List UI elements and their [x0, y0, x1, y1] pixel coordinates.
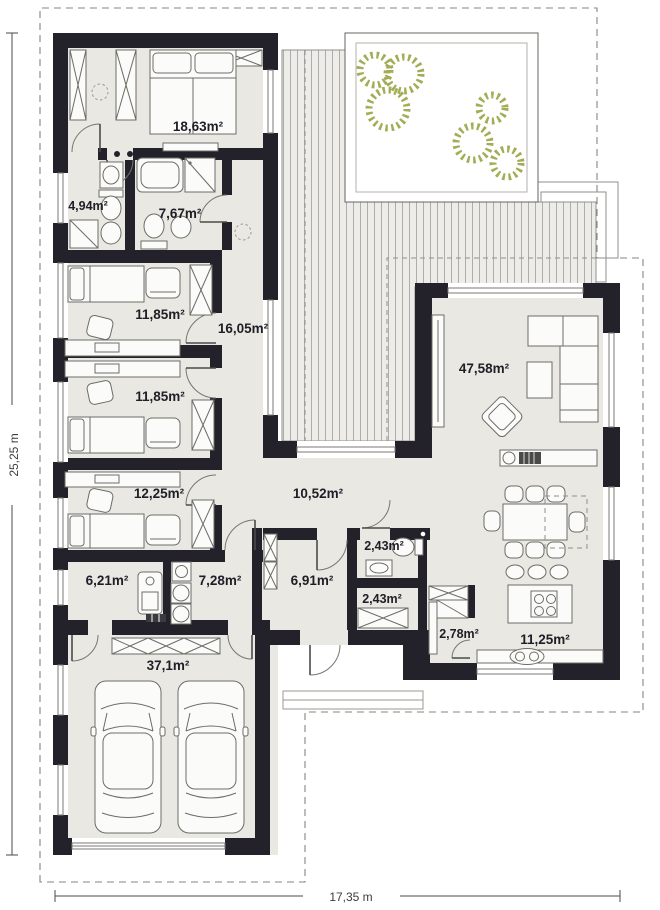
coffee-table: [527, 362, 552, 398]
dimension-left: 25,25 m: [6, 33, 21, 855]
armchair: [146, 515, 180, 545]
bar-stool: [550, 565, 568, 579]
desk: [65, 361, 180, 377]
armchair: [146, 418, 180, 448]
garage-door: [72, 838, 225, 855]
single-bed: [68, 417, 144, 453]
closet-shelf: [358, 608, 408, 628]
room-label-wc: 4,94m²: [68, 199, 108, 213]
dimension-bottom: 17,35 m: [55, 890, 620, 904]
kitchen-counter: [477, 649, 603, 665]
glass-door-living: [448, 283, 583, 298]
single-bed: [68, 514, 144, 548]
window-living-east: [603, 333, 620, 427]
kitchen-island: [508, 585, 572, 623]
window-garage-1: [53, 665, 68, 715]
room-label-vestibule: 6,91m²: [291, 573, 334, 588]
bidet-icon: [101, 222, 121, 244]
window-west-bedroom-2: [53, 382, 68, 462]
window-west-wc: [53, 173, 68, 223]
room-label-main-bedroom: 18,63m²: [173, 119, 224, 134]
sideboard: [500, 450, 597, 466]
bar-stool: [528, 565, 546, 579]
room-label-toilet: 2,43m²: [364, 539, 404, 553]
room-label-living-room: 47,58m²: [459, 361, 510, 376]
room-label-laundry: 7,28m²: [199, 573, 242, 588]
door-entry: [310, 645, 340, 675]
car-icon: [174, 681, 248, 833]
entry-steps: [283, 691, 423, 709]
room-label-bedroom-1: 11,85m²: [135, 307, 185, 322]
desk-chair: [86, 488, 114, 514]
room-label-kitchen: 11,25m²: [520, 632, 570, 647]
window-west-utility: [53, 570, 68, 605]
floor-plan: 25,25 m 17,35 m: [0, 0, 660, 910]
room-label-closet: 2,43m²: [362, 592, 402, 606]
armchair: [146, 268, 180, 298]
bathtub-icon: [137, 158, 183, 192]
floor-plan-svg: 25,25 m 17,35 m: [0, 0, 660, 910]
room-label-corridor: 10,52m²: [293, 486, 344, 501]
dimension-height-label: 25,25 m: [7, 433, 21, 476]
car-icon: [91, 681, 165, 833]
room-label-bathroom: 7,67m²: [159, 206, 202, 221]
room-label-bedroom-3: 12,25m²: [134, 486, 185, 501]
window-west-bedroom-1: [53, 263, 68, 338]
room-label-hall: 16,05m²: [218, 321, 269, 336]
window-bedroom-terrace: [263, 70, 278, 133]
room-label-pantry: 2,78m²: [439, 627, 479, 641]
room-label-utility: 6,21m²: [86, 573, 129, 588]
window-hall-terrace: [263, 300, 278, 415]
desk-chair: [86, 380, 114, 406]
desk: [65, 340, 180, 356]
single-bed: [68, 266, 144, 302]
desk: [65, 472, 180, 487]
window-garage-2: [53, 765, 68, 815]
dimension-width-label: 17,35 m: [329, 890, 372, 904]
bar-stool: [506, 565, 524, 579]
window-west-bedroom-3: [53, 498, 68, 548]
window-kitchen-east: [603, 487, 620, 560]
dining-table: [503, 504, 567, 540]
window-kitchen-south: [477, 663, 553, 680]
room-label-bedroom-2: 11,85m²: [135, 389, 185, 404]
garden-bed: [345, 33, 538, 202]
bed-bench: [163, 143, 218, 151]
room-label-garage: 37,1m²: [147, 658, 190, 673]
glass-door-corridor: [297, 441, 395, 458]
vestibule-closets: [264, 534, 277, 589]
